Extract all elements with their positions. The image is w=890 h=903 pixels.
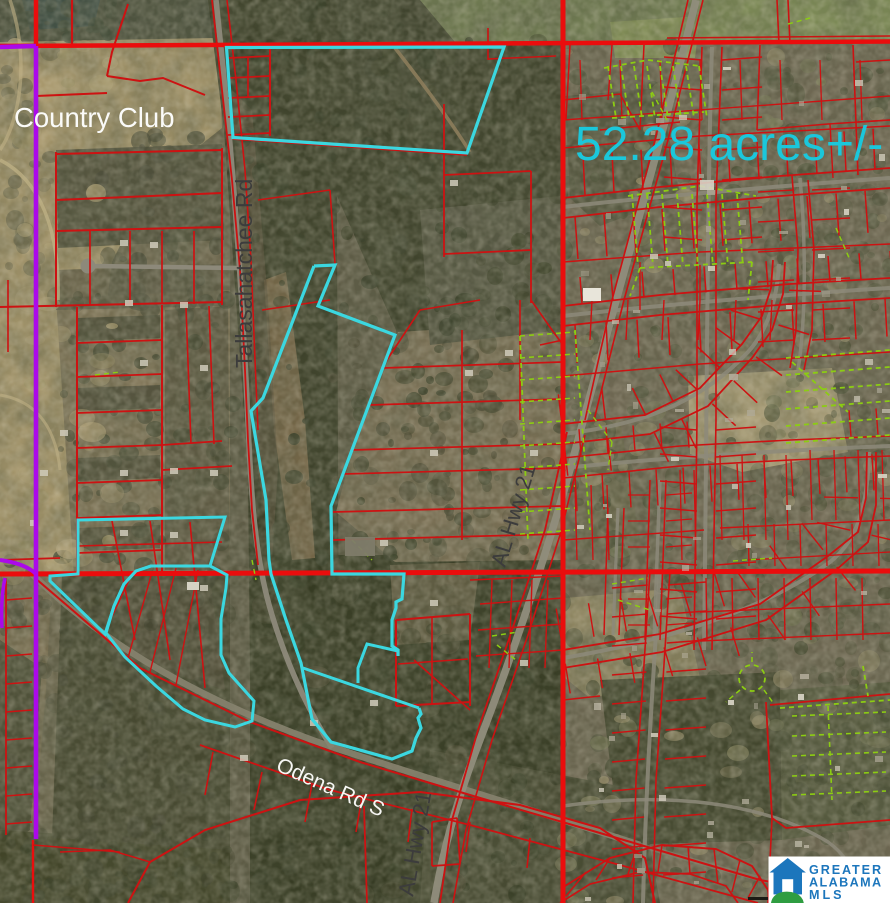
svg-text:MLS: MLS (809, 888, 845, 902)
svg-text:52.28 acres+/-: 52.28 acres+/- (575, 118, 883, 171)
svg-text:Tallasahatchee Rd: Tallasahatchee Rd (231, 179, 257, 368)
svg-text:Country Club: Country Club (14, 102, 175, 133)
